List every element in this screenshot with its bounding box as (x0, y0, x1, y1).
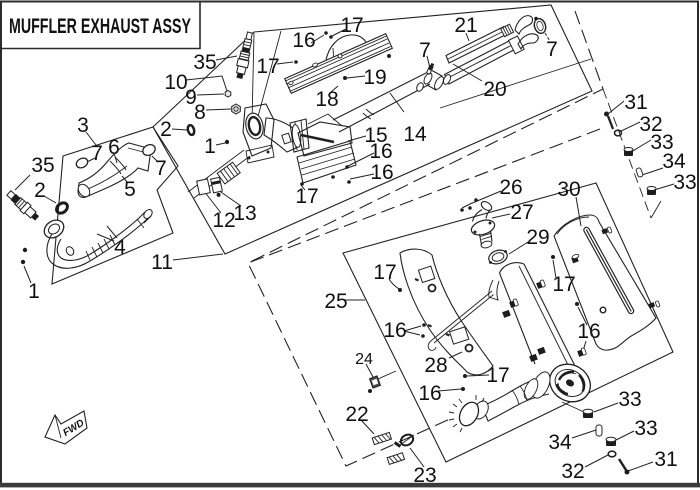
svg-text:1: 1 (28, 280, 40, 303)
svg-text:17: 17 (340, 14, 363, 37)
svg-text:7: 7 (155, 157, 167, 180)
svg-text:25: 25 (324, 290, 347, 313)
svg-text:18: 18 (315, 88, 338, 111)
svg-text:17: 17 (295, 185, 318, 208)
svg-text:20: 20 (483, 78, 506, 101)
svg-text:7: 7 (91, 142, 103, 165)
svg-text:19: 19 (363, 66, 386, 89)
svg-text:17: 17 (552, 273, 575, 296)
svg-text:13: 13 (233, 202, 256, 225)
svg-text:16: 16 (292, 29, 315, 52)
svg-text:11: 11 (151, 251, 173, 274)
svg-text:17: 17 (256, 55, 279, 78)
svg-text:34: 34 (548, 431, 572, 454)
svg-text:7: 7 (419, 39, 431, 62)
svg-text:17: 17 (486, 364, 509, 387)
svg-text:21: 21 (454, 14, 477, 37)
svg-text:6: 6 (108, 136, 120, 159)
svg-text:12: 12 (212, 209, 235, 232)
svg-text:16: 16 (418, 382, 441, 405)
svg-text:28: 28 (424, 354, 447, 377)
svg-text:27: 27 (510, 201, 533, 224)
svg-text:16: 16 (383, 319, 406, 342)
svg-text:33: 33 (618, 388, 641, 411)
svg-text:16: 16 (577, 320, 600, 343)
svg-text:4: 4 (114, 236, 126, 259)
svg-text:23: 23 (413, 464, 436, 487)
svg-text:16: 16 (369, 140, 392, 163)
svg-text:22: 22 (345, 403, 368, 426)
svg-text:30: 30 (557, 178, 580, 201)
svg-text:2: 2 (34, 179, 46, 202)
svg-text:17: 17 (373, 261, 396, 284)
svg-text:3: 3 (77, 114, 89, 137)
svg-text:2: 2 (160, 118, 172, 141)
svg-text:29: 29 (526, 226, 549, 249)
svg-text:24: 24 (355, 351, 373, 368)
svg-text:7: 7 (546, 38, 558, 61)
svg-text:MUFFLER EXHAUST ASSY: MUFFLER EXHAUST ASSY (9, 15, 191, 38)
svg-text:35: 35 (31, 154, 54, 177)
svg-text:1: 1 (204, 135, 216, 158)
svg-text:35: 35 (193, 51, 216, 74)
svg-text:31: 31 (654, 448, 677, 471)
svg-text:33: 33 (634, 417, 657, 440)
svg-text:26: 26 (499, 176, 522, 199)
svg-text:33: 33 (673, 171, 696, 194)
svg-text:14: 14 (403, 123, 427, 146)
svg-text:34: 34 (662, 150, 686, 173)
svg-text:5: 5 (124, 178, 136, 201)
svg-text:16: 16 (370, 161, 393, 184)
svg-text:31: 31 (624, 91, 647, 114)
svg-text:32: 32 (561, 460, 584, 483)
svg-text:8: 8 (194, 101, 206, 124)
